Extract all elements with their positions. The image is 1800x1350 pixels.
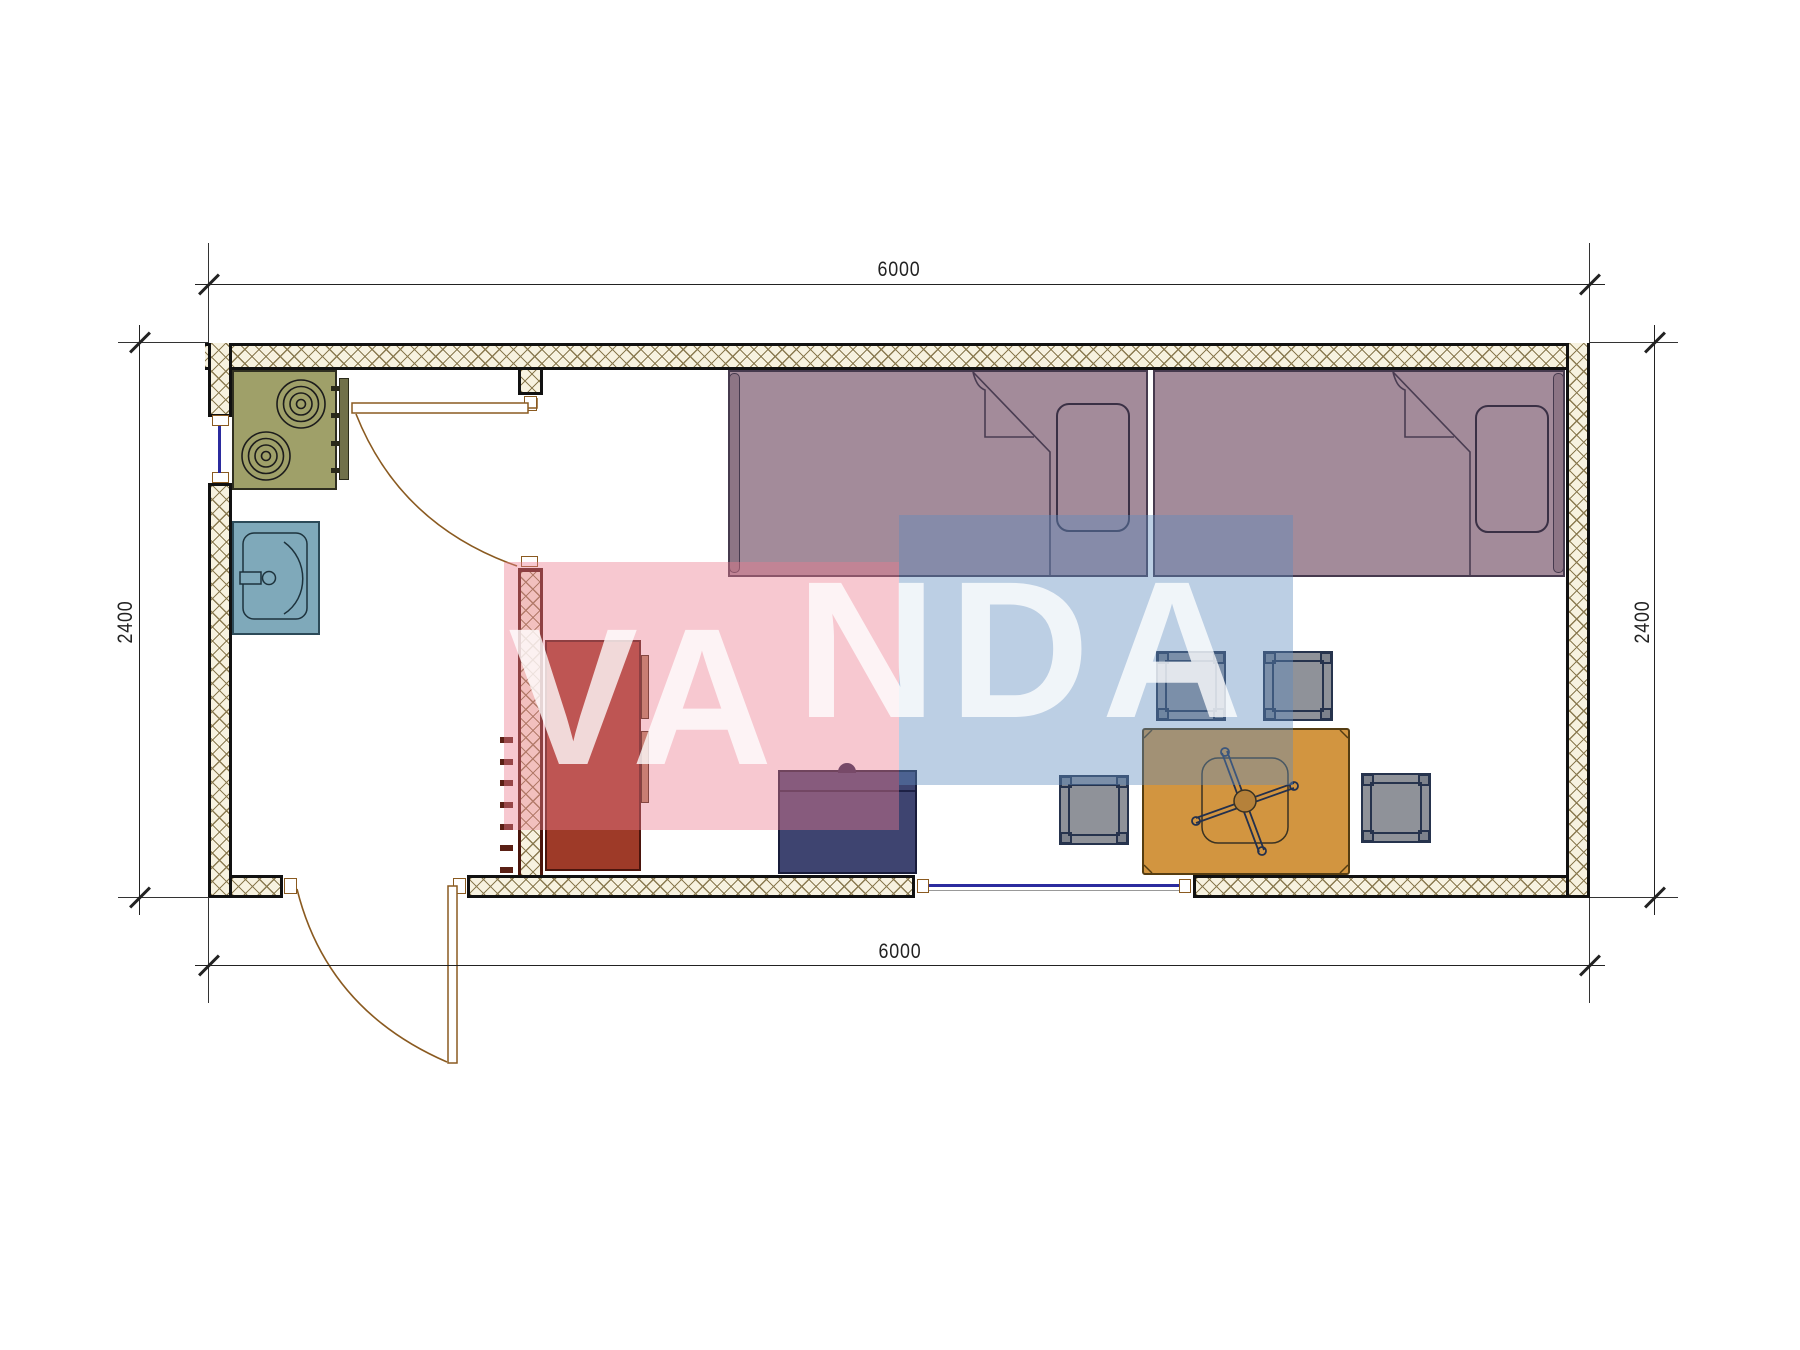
dim-label-top: 6000 [857,258,942,282]
burner-large [277,380,325,428]
extension-line [208,243,209,343]
dim-label-bottom: 6000 [858,940,943,964]
exterior-door [297,886,457,1063]
extension-line [1590,342,1678,343]
extension-line [208,898,209,1003]
dim-line-top [195,284,1605,285]
extension-line [1589,243,1590,343]
dim-line-bottom [195,965,1605,966]
dim-label-right: 2400 [1631,580,1655,665]
dim-line-left [139,325,140,915]
extension-line [1590,897,1678,898]
watermark-text-va: VA [508,600,780,795]
interior-door [352,398,537,566]
extension-line [1589,898,1590,1003]
dim-label-left: 2400 [114,580,138,665]
interior-door-swing-arc [356,414,517,566]
extension-line [118,897,209,898]
exterior-door-swing-arc [297,889,447,1062]
faucet-icon [240,572,276,585]
burner-small [242,432,290,480]
bed-2-blanket-fold [1393,372,1470,575]
floor-plan-canvas: VA NDA 6000 6000 2400 2400 [0,0,1800,1350]
extension-line [118,342,209,343]
watermark-text-nda: NDA [796,553,1254,748]
